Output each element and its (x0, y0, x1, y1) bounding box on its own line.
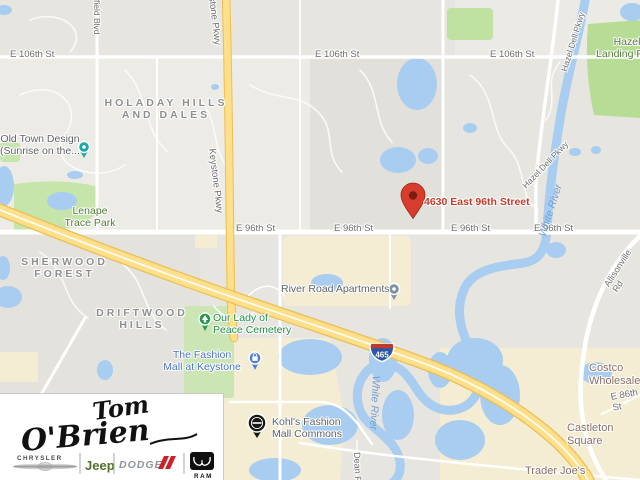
poi-label-kohls[interactable]: Kohl's Fashion Mall Commons (272, 416, 342, 440)
street-label-e96th-2: E 96th St (334, 224, 373, 235)
svg-text:RAM: RAM (194, 473, 213, 480)
street-label-e96th-3: E 96th St (451, 224, 490, 235)
tom-obrien-script: Tom O'Brien (20, 394, 197, 459)
ram-logo: RAM (190, 452, 214, 480)
svg-text:465: 465 (375, 351, 389, 360)
street-label-e106th-3: E 106th St (490, 50, 534, 61)
neighborhood-label-sherwood: SHERWOOD FOREST (12, 256, 117, 280)
script-flourish (150, 434, 197, 444)
park-label-lenape-trace: Lenape Trace Park (55, 205, 125, 229)
street-label-e86th: E 86th St (610, 388, 640, 415)
dealer-logo: Tom O'Brien CHRYSLER Jeep DODGE (0, 393, 224, 480)
svg-text:CHRYSLER: CHRYSLER (17, 455, 63, 462)
street-label-e106th-1: E 106th St (10, 50, 54, 61)
neighborhood-label-driftwood: DRIFTWOOD HILLS (92, 307, 192, 331)
poi-label-costco[interactable]: Costco Wholesale (589, 362, 640, 387)
street-label-dean-rd: Dean Rd (352, 452, 364, 480)
svg-text:O'Brien: O'Brien (20, 413, 151, 459)
brand-row: CHRYSLER Jeep DODGE RAM (13, 452, 214, 480)
poi-label-old-town-design[interactable]: Old Town Design (Sunrise on the... (0, 133, 80, 157)
poi-label-river-road-apartments[interactable]: River Road Apartments (281, 283, 390, 295)
poi-label-castleton-square[interactable]: Castleton Square (567, 422, 640, 447)
dodge-logo: DODGE (119, 456, 176, 471)
poi-label-our-lady-of-peace[interactable]: Our Lady of Peace Cemetery (213, 312, 291, 336)
marker-address-label: 4630 East 96th Street (424, 196, 530, 208)
street-label-e96th-1: E 96th St (236, 224, 275, 235)
jeep-logo: Jeep (85, 458, 115, 473)
svg-text:DODGE: DODGE (119, 459, 163, 471)
poi-label-fashion-mall[interactable]: The Fashion Mall at Keystone (158, 349, 246, 373)
neighborhood-label-holaday: HOLADAY HILLS AND DALES (96, 97, 236, 121)
chrysler-logo: CHRYSLER (13, 455, 77, 471)
street-label-e106th-2: E 106th St (315, 50, 359, 61)
poi-label-trader-joes[interactable]: Trader Joe's (525, 465, 585, 478)
street-label-field-blvd: field Blvd (91, 0, 101, 35)
park-label-hazel-landing: Hazel Landing Park (592, 36, 640, 60)
map-viewport[interactable]: 465 (0, 0, 640, 480)
